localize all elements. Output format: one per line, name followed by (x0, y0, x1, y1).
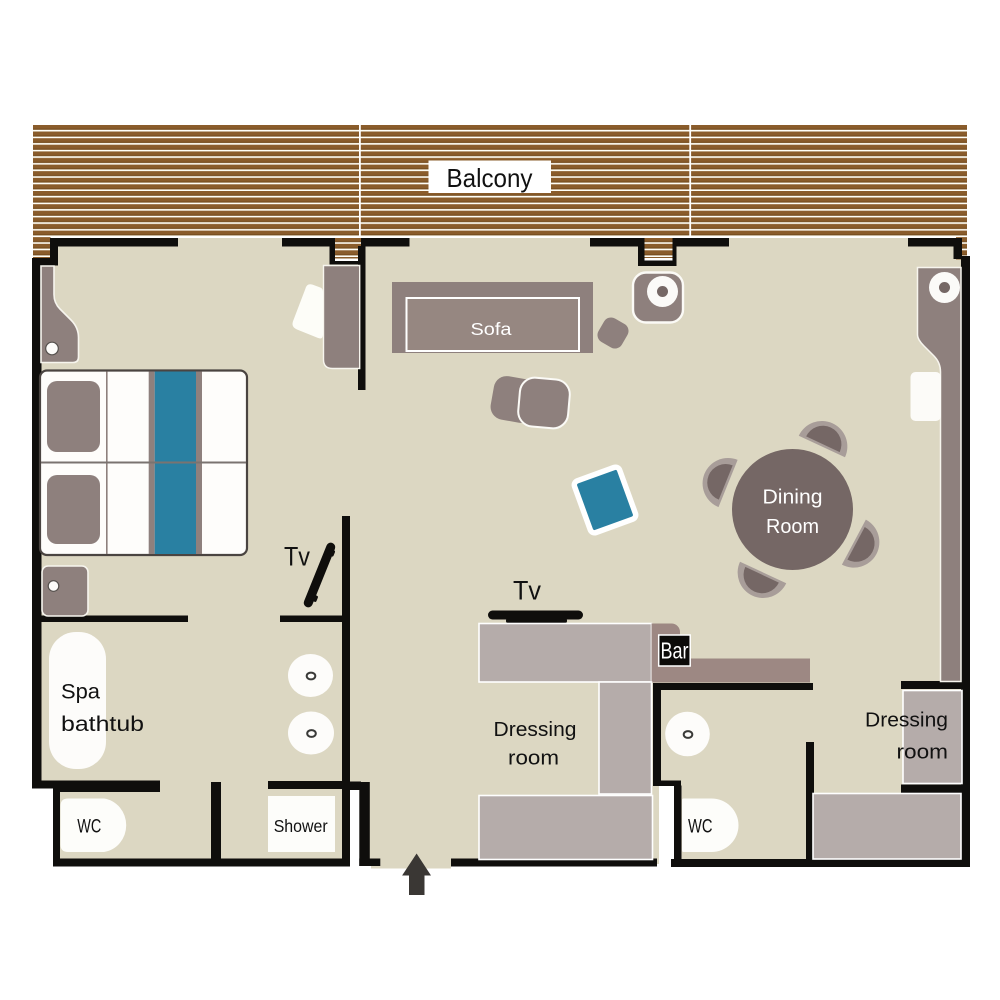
svg-text:Balcony: Balcony (447, 163, 533, 193)
svg-text:room: room (897, 741, 949, 764)
svg-text:Tv: Tv (284, 542, 310, 572)
svg-text:Tv: Tv (513, 576, 541, 606)
svg-text:Shower: Shower (274, 816, 328, 836)
svg-text:Dressing: Dressing (494, 718, 577, 741)
svg-text:Room: Room (766, 515, 819, 538)
svg-text:room: room (508, 747, 559, 770)
svg-text:Bar: Bar (661, 638, 689, 664)
svg-text:bathtub: bathtub (61, 712, 144, 736)
svg-text:Dressing: Dressing (865, 709, 948, 732)
svg-text:Sofa: Sofa (471, 319, 512, 339)
svg-text:WC: WC (77, 817, 101, 838)
svg-text:Spa: Spa (61, 680, 100, 704)
svg-text:Dining: Dining (763, 486, 823, 509)
svg-text:WC: WC (688, 817, 713, 838)
